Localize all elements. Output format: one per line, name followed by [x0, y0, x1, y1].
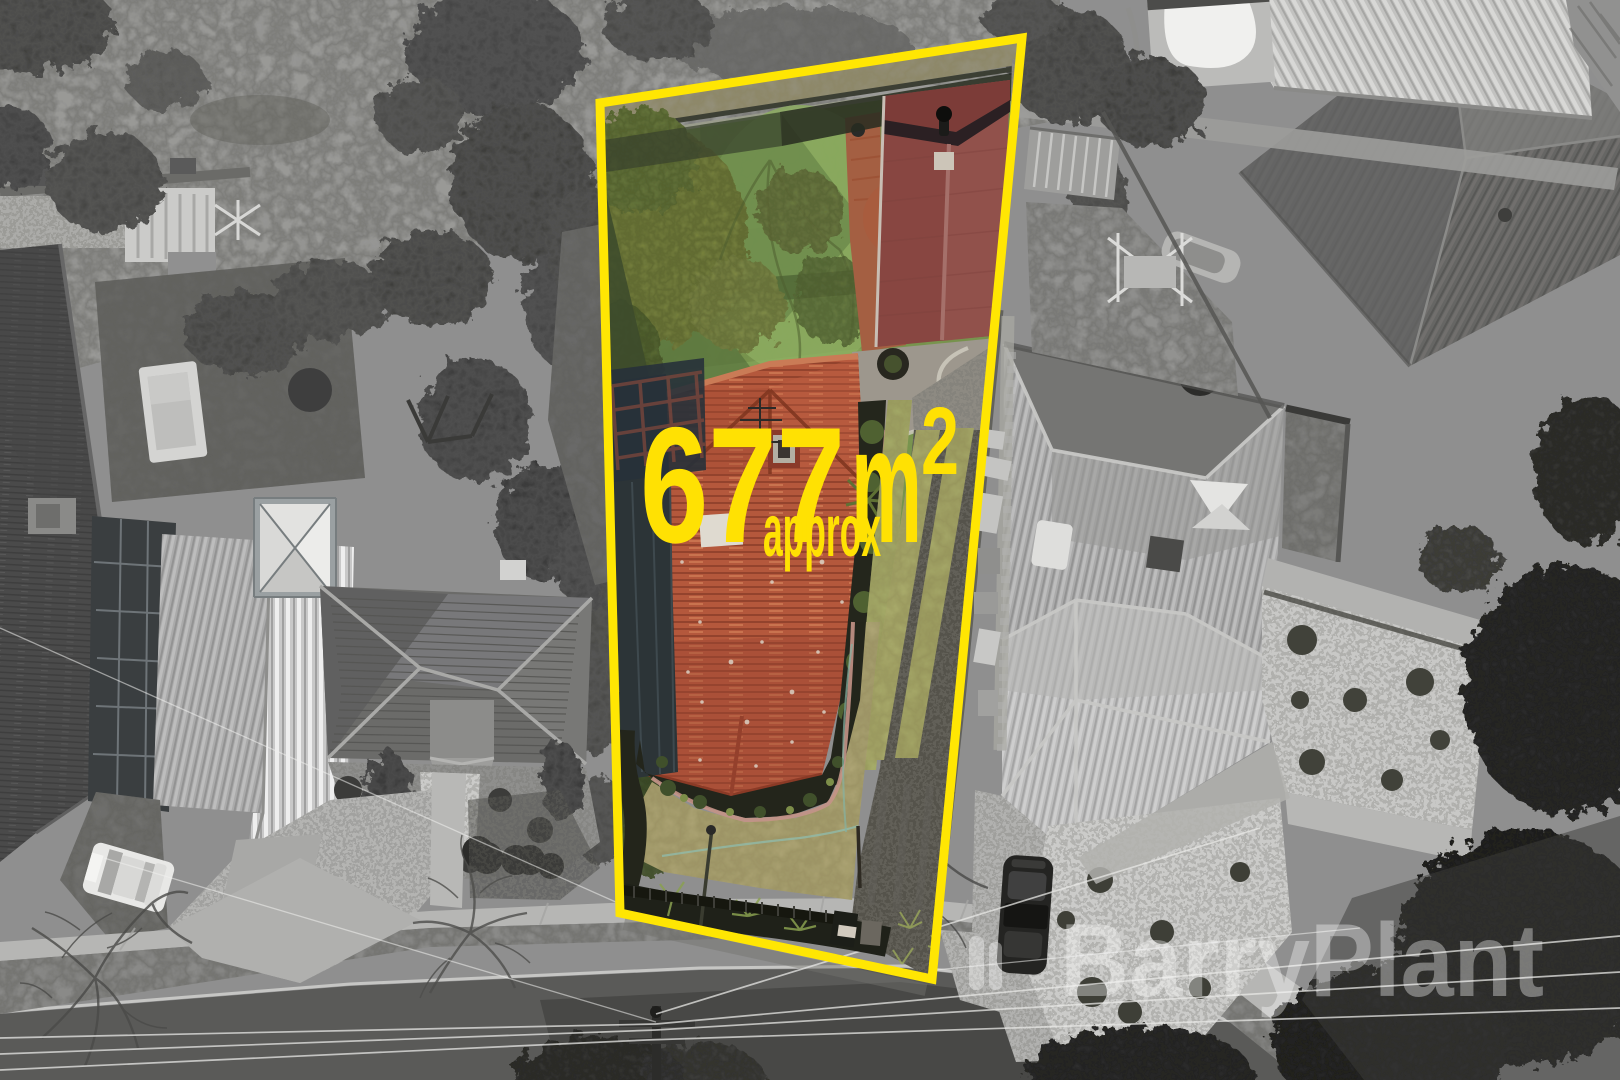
svg-text:BarryPlant: BarryPlant [1060, 903, 1544, 1019]
svg-text:2: 2 [921, 388, 959, 495]
svg-text:approx: approx [763, 489, 881, 572]
